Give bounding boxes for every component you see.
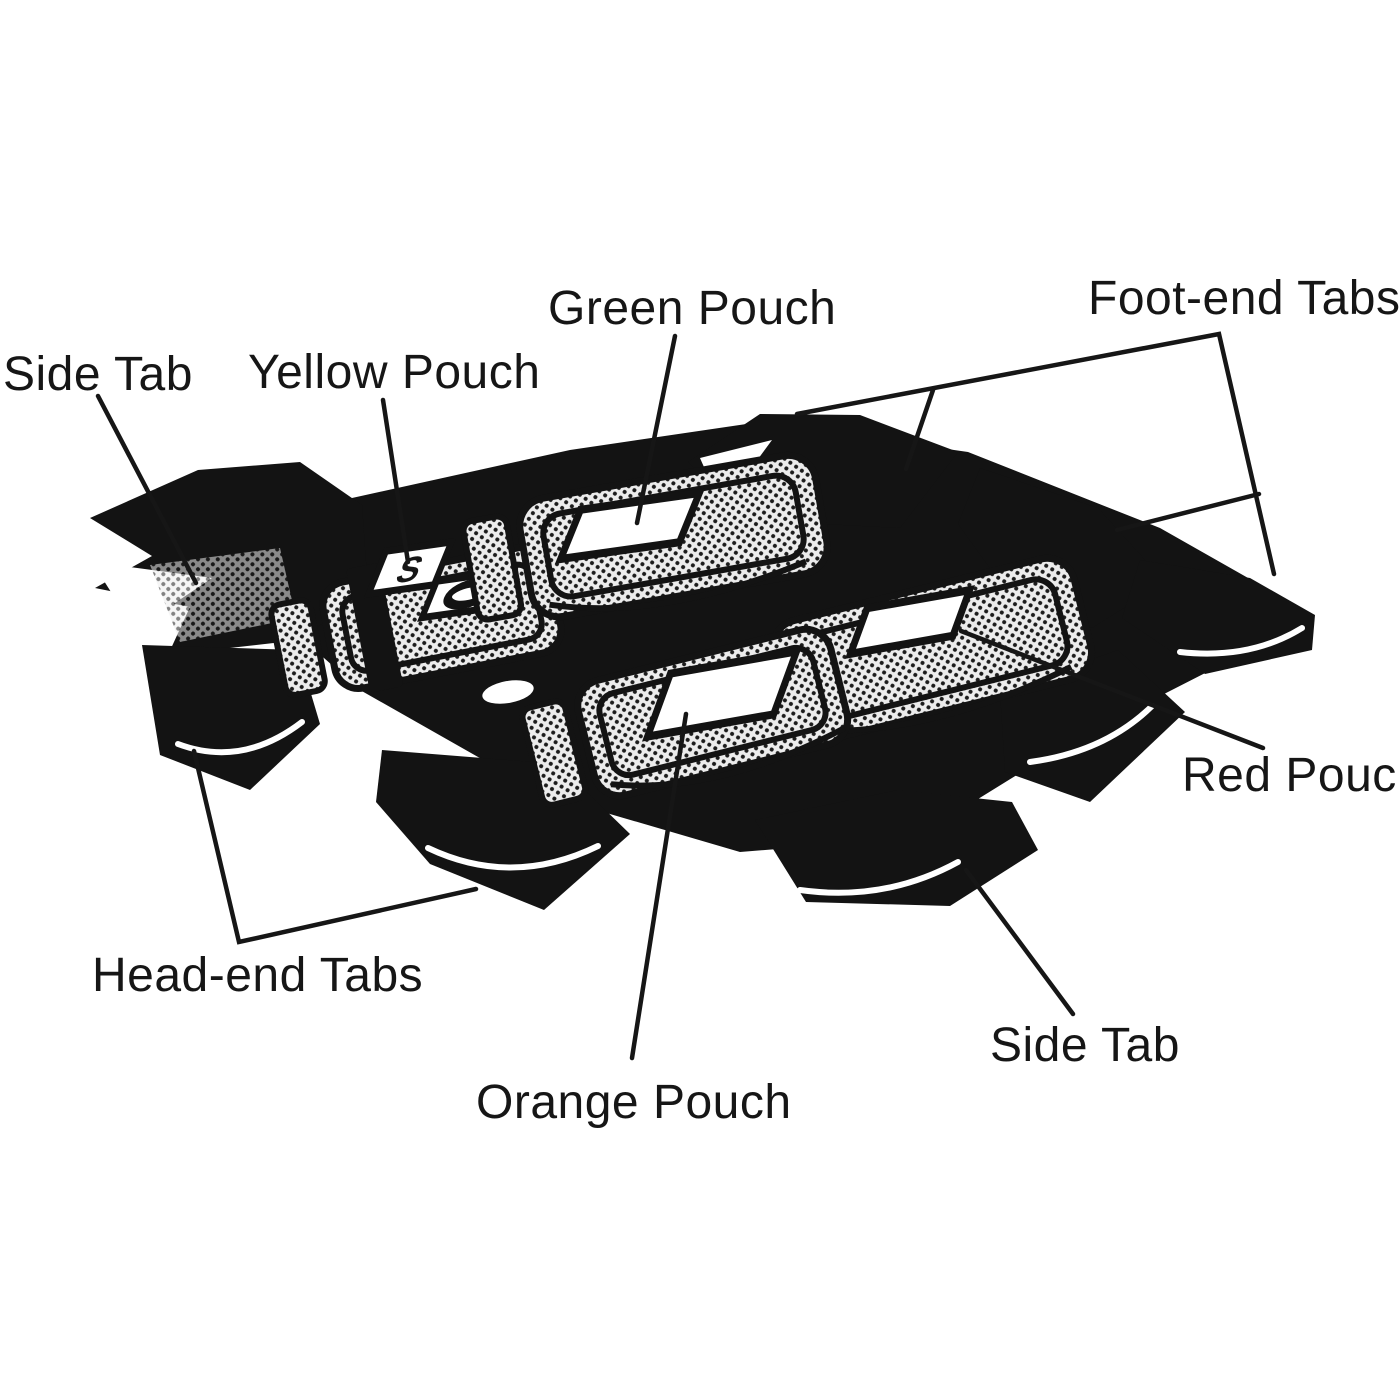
label-head-end-tabs: Head-end Tabs — [92, 949, 423, 1002]
label-side-tab-bottom: Side Tab — [990, 1019, 1180, 1072]
label-side-tab-top: Side Tab — [3, 348, 193, 401]
label-yellow-pouch: Yellow Pouch — [248, 346, 540, 399]
leader-foot-end-tab-branch-2 — [1117, 494, 1259, 530]
diagram-canvas: S — [0, 0, 1400, 1400]
label-green-pouch: Green Pouch — [548, 282, 836, 335]
leader-side-tab-bottom — [966, 870, 1073, 1014]
label-foot-end-tabs: Foot-end Tabs — [1088, 272, 1400, 325]
diagram-page: S — [0, 0, 1400, 1400]
label-red-pouch: Red Pouch — [1182, 749, 1400, 802]
label-orange-pouch: Orange Pouch — [476, 1076, 792, 1129]
